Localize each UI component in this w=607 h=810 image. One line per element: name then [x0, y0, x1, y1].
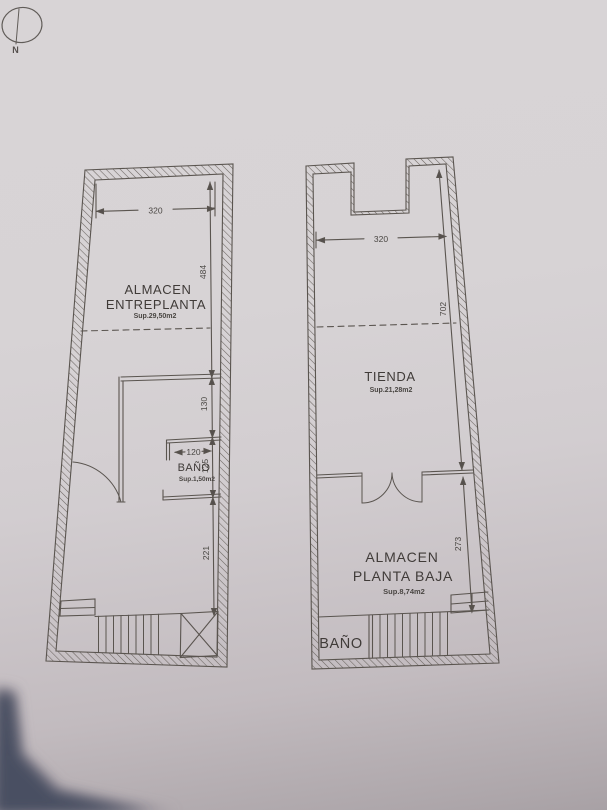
dim-125: 125: [200, 459, 210, 473]
right-partition-wall: [317, 470, 473, 478]
room-area-bano-entreplanta: Sup.1,50m2: [179, 476, 216, 483]
room-label-almacen-entreplanta-line2: ENTREPLANTA: [106, 297, 206, 312]
room-label-almacen-pb-line2: PLANTA BAJA: [353, 568, 453, 584]
floor-plan-photo: N: [0, 0, 607, 810]
photo-corner-shadow: [0, 686, 175, 810]
right-mezzanine-dashed-line: [317, 323, 456, 327]
right-staircase: [380, 612, 448, 657]
dim-120: 120: [186, 447, 200, 457]
dim-273: 273: [453, 537, 463, 551]
room-label-almacen-pb-line1: ALMACEN: [365, 549, 438, 565]
dim-702: 702: [438, 302, 448, 316]
left-door-arc: [73, 462, 121, 502]
room-area-almacen-entreplanta: Sup.29,50m2: [134, 313, 177, 320]
right-bottom-zone-line: [318, 610, 489, 617]
compass: N: [0, 5, 44, 55]
room-label-almacen-entreplanta-line1: ALMACEN: [124, 282, 191, 297]
compass-circle: [0, 5, 44, 45]
room-label-bano-pb: BAÑO: [319, 635, 363, 652]
left-staircase: [95, 614, 181, 655]
left-closet: [60, 599, 95, 616]
dim-221: 221: [201, 546, 211, 560]
dim-484: 484: [198, 265, 208, 279]
floor-plan-drawing: N: [0, 0, 607, 810]
left-mezzanine-dashed-line: [81, 328, 210, 331]
compass-needle: [16, 9, 19, 44]
room-area-tienda: Sup.21,28m2: [370, 387, 413, 394]
north-label: N: [12, 45, 19, 55]
right-plan: TIENDA Sup.21,28m2 ALMACEN PLANTA BAJA S…: [306, 157, 499, 669]
room-area-almacen-pb: Sup.8,74m2: [383, 587, 425, 596]
dim-320-right: 320: [374, 234, 388, 244]
dim-320-left: 320: [148, 206, 162, 216]
left-plan: ALMACEN ENTREPLANTA Sup.29,50m2 BAÑO Sup…: [46, 164, 233, 667]
right-double-door: [362, 472, 422, 503]
room-label-tienda: TIENDA: [364, 369, 415, 384]
left-elevator-shaft: [180, 612, 218, 658]
left-plan-exterior-walls: [46, 164, 233, 667]
right-bathroom-wall: [369, 615, 373, 658]
dim-130: 130: [199, 397, 209, 411]
